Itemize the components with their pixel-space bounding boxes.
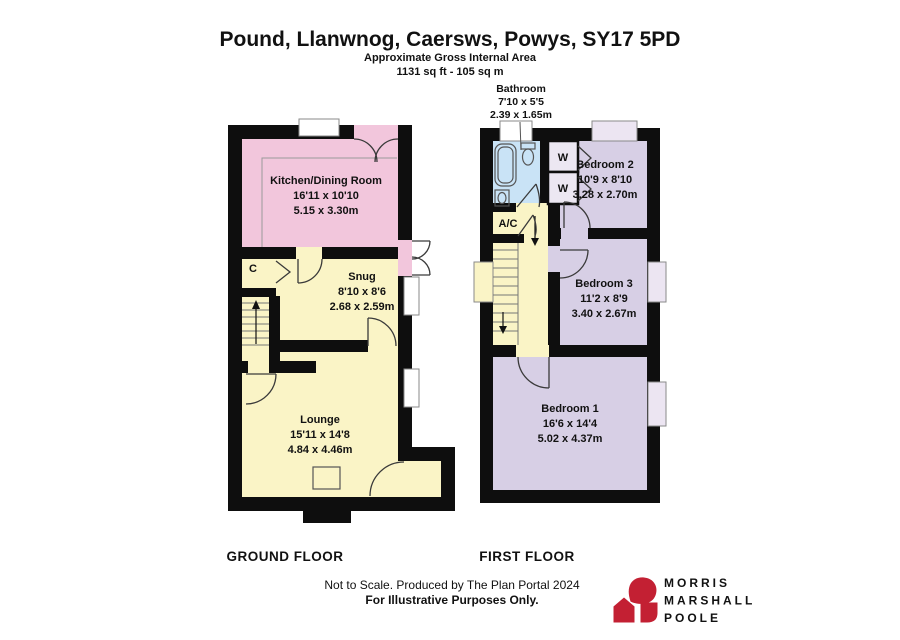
page-title: Pound, Llanwnog, Caersws, Powys, SY17 5P…: [220, 28, 681, 51]
lounge-metric: 4.84 x 4.46m: [288, 444, 353, 456]
garden-door-bottom: [412, 257, 430, 275]
logo-text-poole: POOLE: [664, 611, 721, 625]
footer-disclaimer: Not to Scale. Produced by The Plan Porta…: [324, 578, 580, 592]
landing-window: [474, 262, 493, 302]
kitchen-window: [299, 119, 339, 136]
hall-stub-wall: [242, 361, 248, 373]
bedroom2-imperial: 10'9 x 8'10: [578, 174, 632, 186]
ground-floor-plan: Kitchen/Dining Room 16'11 x 10'10 5.15 x…: [228, 119, 455, 523]
floorplan-image: Pound, Llanwnog, Caersws, Powys, SY17 5P…: [0, 0, 900, 635]
lounge-name: Lounge: [300, 414, 340, 426]
floorplan-page: Pound, Llanwnog, Caersws, Powys, SY17 5P…: [0, 0, 900, 635]
bed1-door-opening: [516, 345, 549, 357]
bedroom2-label: Bedroom 2 10'9 x 8'10 3.28 x 2.70m: [573, 159, 638, 201]
kitchen-metric: 5.15 x 3.30m: [294, 205, 359, 217]
kitchen-imperial: 16'11 x 10'10: [293, 190, 359, 202]
bedroom3-name: Bedroom 3: [575, 278, 632, 290]
snug-window: [404, 277, 419, 315]
bedroom3-imperial: 11'2 x 8'9: [580, 293, 627, 305]
ground-floor-title: GROUND FLOOR: [227, 549, 344, 564]
total-area: 1131 sq ft - 105 sq m: [397, 66, 504, 78]
french-door-opening: [354, 125, 398, 139]
garden-door-top: [412, 241, 430, 259]
lounge-imperial: 15'11 x 14'8: [290, 429, 350, 441]
hall-wall: [269, 296, 280, 373]
footer-illustrative: For Illustrative Purposes Only.: [365, 593, 538, 607]
logo-petal-icon: [629, 577, 657, 603]
bedroom2-metric: 3.28 x 2.70m: [573, 189, 638, 201]
cupboard-wall: [242, 288, 276, 297]
logo-square-icon: [641, 603, 658, 623]
snug-name: Snug: [348, 271, 376, 283]
bedroom3-metric: 3.40 x 2.67m: [572, 308, 637, 320]
bathroom-imperial: 7'10 x 5'5: [498, 96, 544, 108]
snug-metric: 2.68 x 2.59m: [330, 301, 395, 313]
gf-chimney: [303, 511, 351, 523]
snug-lounge-wall: [269, 340, 368, 352]
bed1-wall: [480, 345, 660, 357]
kitchen-door-opening: [296, 247, 322, 259]
ac-bottom-wall: [493, 234, 524, 243]
porch-door-opening: [398, 461, 412, 497]
bedroom3-window: [648, 262, 666, 302]
bedroom1-imperial: 16'6 x 14'4: [543, 418, 598, 430]
wardrobe1-label: W: [558, 152, 569, 164]
bedroom3-room: [560, 239, 647, 345]
lounge-snug-area: [242, 247, 398, 497]
first-floor-title: FIRST FLOOR: [479, 549, 575, 564]
bedroom1-window: [648, 382, 666, 426]
bed3-door-opening: [548, 246, 560, 272]
bedroom1-name: Bedroom 1: [541, 403, 598, 415]
bathroom-metric: 2.39 x 1.65m: [490, 109, 552, 121]
kitchen-ext-door-opening: [398, 240, 412, 276]
bedroom3-label: Bedroom 3 11'2 x 8'9 3.40 x 2.67m: [572, 278, 637, 320]
kitchen-name: Kitchen/Dining Room: [270, 175, 382, 187]
bedroom1-metric: 5.02 x 4.37m: [538, 433, 603, 445]
landing-side-wall: [548, 203, 560, 357]
cupboard-label: C: [249, 263, 257, 275]
logo-text-marshall: MARSHALL: [664, 594, 755, 608]
subtitle: Approximate Gross Internal Area: [364, 52, 537, 64]
lounge-breast-wall: [280, 361, 316, 373]
bedroom1-label: Bedroom 1 16'6 x 14'4 5.02 x 4.37m: [538, 403, 603, 445]
bathroom-name: Bathroom: [496, 83, 546, 95]
porch-floor: [410, 461, 441, 497]
bathroom-window: [500, 121, 532, 141]
logo-text-morris: MORRIS: [664, 576, 730, 590]
snug-imperial: 8'10 x 8'6: [338, 286, 386, 298]
bedroom2-window: [592, 121, 637, 141]
wardrobe2-label: W: [558, 183, 569, 195]
ac-label: A/C: [499, 218, 518, 230]
first-floor-plan: Bathroom 7'10 x 5'5 2.39 x 1.65m Bedroom…: [474, 83, 666, 503]
lounge-window: [404, 369, 419, 407]
bedroom2-name: Bedroom 2: [576, 159, 633, 171]
bed2-door-opening: [561, 228, 588, 239]
brand-logo: MORRIS MARSHALL POOLE: [614, 576, 756, 625]
